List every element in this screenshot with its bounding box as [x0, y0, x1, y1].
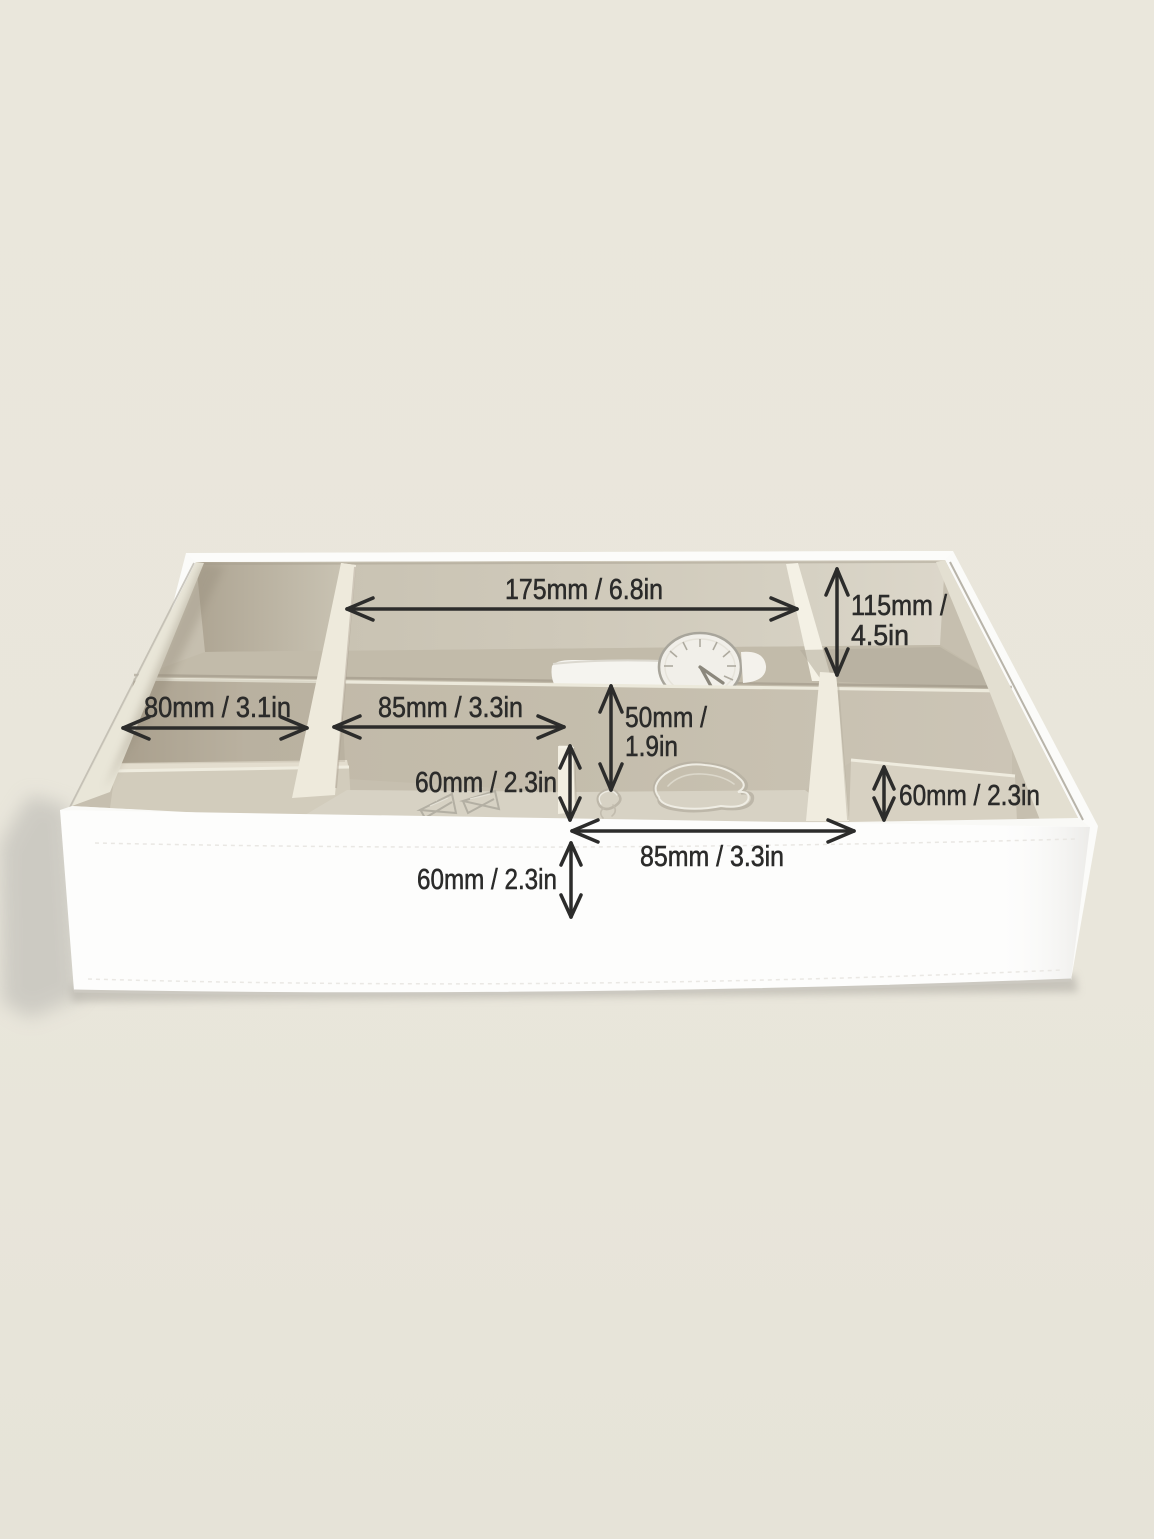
- svg-text:1.9in: 1.9in: [625, 731, 678, 763]
- svg-text:85mm / 3.3in: 85mm / 3.3in: [378, 692, 523, 724]
- svg-text:4.5in: 4.5in: [851, 620, 909, 652]
- svg-text:50mm /: 50mm /: [625, 702, 707, 734]
- svg-text:60mm / 2.3in: 60mm / 2.3in: [417, 864, 557, 896]
- svg-text:115mm /: 115mm /: [851, 590, 947, 622]
- svg-text:60mm / 2.3in: 60mm / 2.3in: [415, 767, 557, 799]
- svg-text:175mm / 6.8in: 175mm / 6.8in: [505, 574, 663, 606]
- svg-text:60mm / 2.3in: 60mm / 2.3in: [899, 780, 1040, 812]
- svg-text:80mm / 3.1in: 80mm / 3.1in: [144, 692, 291, 724]
- svg-text:85mm / 3.3in: 85mm / 3.3in: [640, 841, 784, 873]
